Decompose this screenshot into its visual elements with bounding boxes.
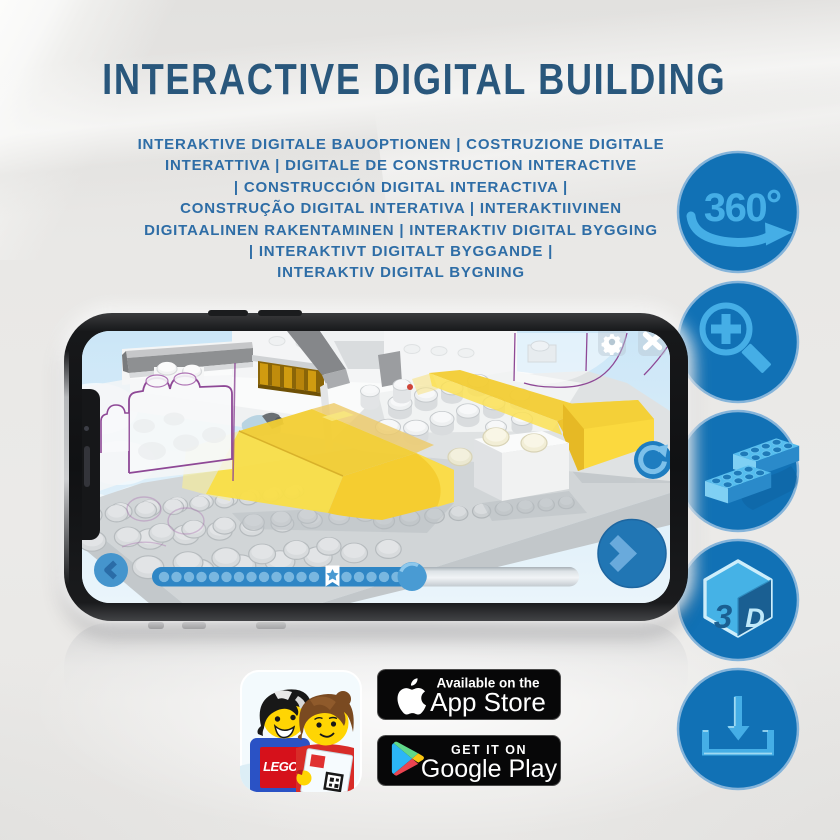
svg-text:Google Play: Google Play [421, 755, 558, 783]
svg-text:D: D [745, 603, 765, 633]
svg-text:App Store: App Store [430, 687, 546, 717]
svg-text:LEGO: LEGO [263, 759, 298, 774]
svg-text:3: 3 [714, 598, 732, 635]
svg-text:360: 360 [704, 186, 766, 230]
